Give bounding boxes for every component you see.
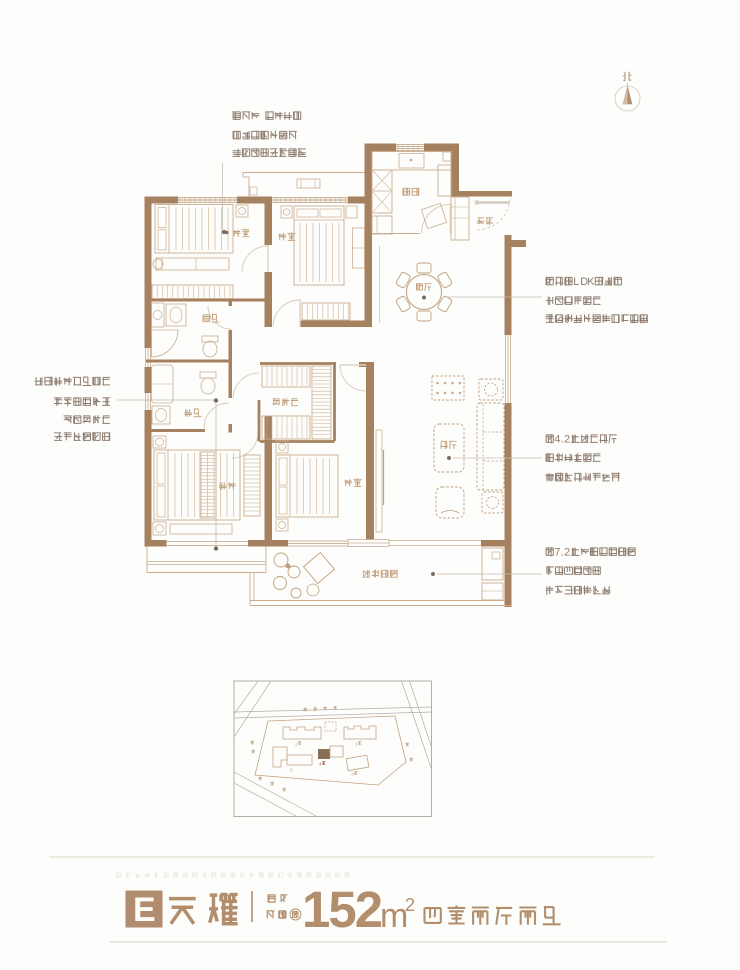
svg-text:7: 7 xyxy=(554,547,560,559)
svg-text:4: 4 xyxy=(554,434,560,446)
svg-text:152: 152 xyxy=(302,881,382,938)
svg-text:4: 4 xyxy=(319,761,322,767)
svg-text:2: 2 xyxy=(405,895,415,915)
svg-text:2: 2 xyxy=(564,547,570,559)
svg-text:5: 5 xyxy=(290,767,293,773)
svg-text:2: 2 xyxy=(295,741,298,747)
svg-text:3: 3 xyxy=(351,771,354,777)
svg-text:1: 1 xyxy=(355,741,358,747)
svg-text:K: K xyxy=(587,276,595,288)
svg-text:E: E xyxy=(133,891,156,929)
svg-text:2: 2 xyxy=(564,434,570,446)
svg-text:L: L xyxy=(573,276,579,288)
